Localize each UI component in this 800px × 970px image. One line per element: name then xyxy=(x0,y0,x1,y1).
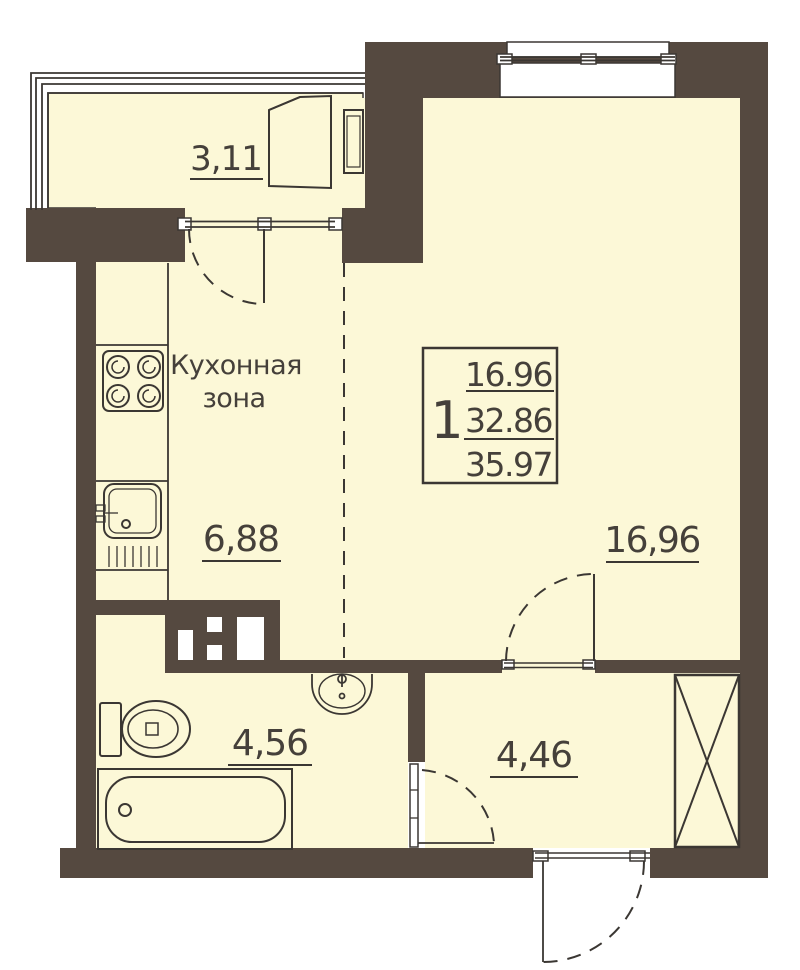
balcony-window-mullion xyxy=(329,218,342,230)
kitchen-zone-label-line1: Кухонная xyxy=(170,350,302,381)
shaft-vent xyxy=(207,645,222,660)
floor-plan: 3,11 Кухонная зона 6,88 16,96 4,56 4,46 … xyxy=(0,0,800,970)
floor-plan-canvas: 3,11 Кухонная зона 6,88 16,96 4,56 4,46 … xyxy=(0,0,800,970)
area-label-hallway: 4,46 xyxy=(496,735,572,776)
wall-balcony-south-right xyxy=(342,208,368,263)
main-window-mullion xyxy=(497,54,512,64)
main-window-recess xyxy=(500,63,675,97)
main-window-mullion xyxy=(581,54,596,64)
wall-mid-left xyxy=(280,660,502,673)
area-label-room: 16,96 xyxy=(604,520,700,561)
kitchen-zone-label-line2: зона xyxy=(202,383,265,414)
hallway-floor xyxy=(425,660,740,848)
unit-living-area: 16.96 xyxy=(465,355,552,394)
entry-door-swing-arc xyxy=(543,861,644,962)
bathroom-door-leaf xyxy=(410,764,418,847)
balcony-window-mullion xyxy=(258,218,271,230)
wall-bottom-right xyxy=(650,848,768,878)
shaft-vent xyxy=(237,617,264,660)
unit-total-area: 35.97 xyxy=(465,445,552,484)
area-label-kitchen: 6,88 xyxy=(203,519,279,560)
wall-balcony-south-left xyxy=(26,208,185,262)
wall-bathroom-stub xyxy=(408,668,425,762)
shaft-vent xyxy=(178,630,193,660)
area-label-bathroom: 4,56 xyxy=(232,723,308,764)
balcony-window-mullion xyxy=(178,218,191,230)
area-label-balcony: 3,11 xyxy=(190,139,262,179)
shaft-vent xyxy=(207,617,222,632)
wall-bottom-left xyxy=(60,848,533,878)
unit-apartment-area: 32.86 xyxy=(465,401,552,440)
wall-mid-right xyxy=(595,660,740,673)
wall-right xyxy=(740,42,768,878)
wall-center-block xyxy=(365,98,423,263)
wall-left xyxy=(76,260,96,850)
main-window-mullion xyxy=(661,54,676,64)
unit-rooms-count: 1 xyxy=(430,391,463,451)
